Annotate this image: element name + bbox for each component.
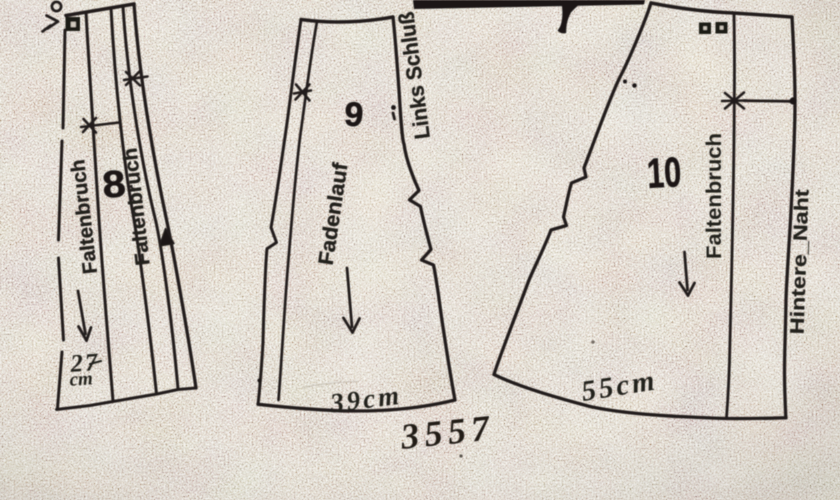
- svg-text:Faltenbruch: Faltenbruch: [702, 133, 726, 259]
- svg-text:9: 9: [343, 95, 365, 134]
- svg-text:10: 10: [646, 148, 682, 197]
- svg-text:cm: cm: [69, 368, 94, 391]
